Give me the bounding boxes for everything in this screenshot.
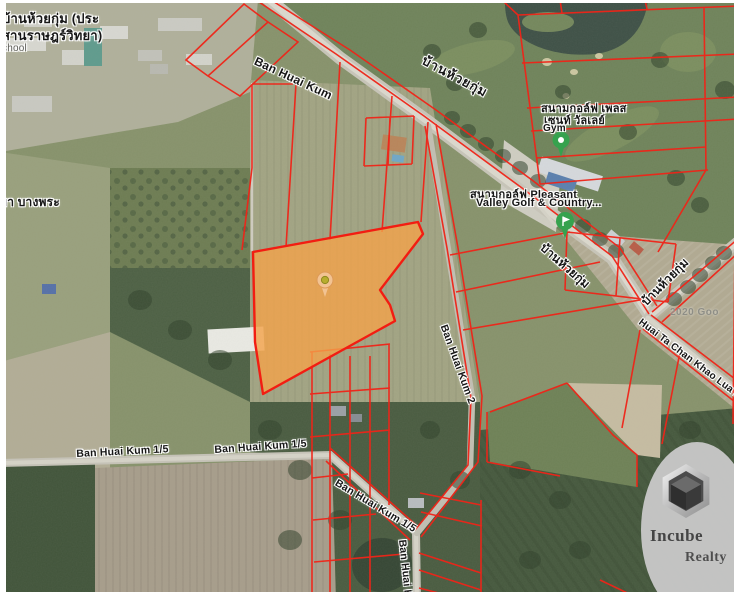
village-label: ยา บางพระ — [0, 193, 60, 212]
gym-marker[interactable] — [553, 132, 570, 158]
watermark-brand-suffix: Realty — [685, 550, 727, 566]
screenshot-frame: บ้านห้วยกุ่ม (ประ สานราษฎร์วิทยา) chool … — [0, 0, 739, 600]
center-parcel-lines — [242, 62, 428, 250]
golf-parcel-lines — [504, 0, 739, 252]
map-attribution: 2020 Goo — [670, 307, 719, 318]
incube-realty-watermark: Incube Realty — [641, 442, 739, 600]
frame-border-right — [734, 0, 739, 600]
golf-en-label-line2: Valley Golf & Country... — [476, 197, 602, 209]
subdivision-grid-lines — [310, 344, 482, 600]
incube-cube-logo — [651, 456, 721, 526]
frame-border-top — [0, 0, 739, 3]
gym-label: Gym — [543, 123, 566, 134]
watermark-brand-name: Incube — [650, 526, 703, 546]
parcel-overlay — [0, 0, 739, 600]
roadside-parcel-lines — [256, 0, 739, 424]
frame-border-left — [0, 0, 6, 600]
frame-border-bottom — [0, 592, 739, 600]
highlight-parcel[interactable] — [253, 222, 423, 394]
map-viewport[interactable]: บ้านห้วยกุ่ม (ประ สานราษฎร์วิทยา) chool … — [0, 0, 739, 600]
